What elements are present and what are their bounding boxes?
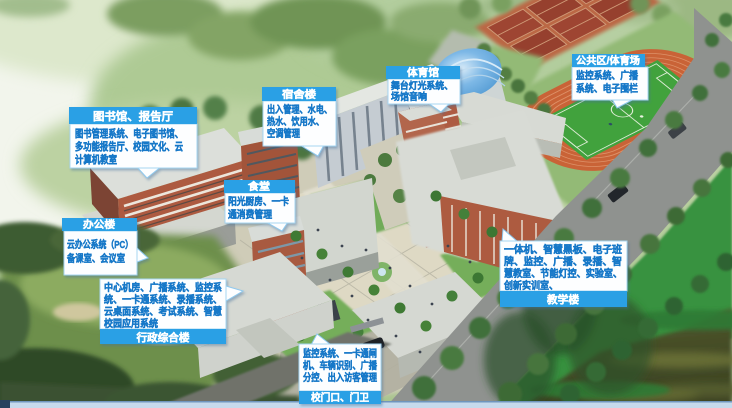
svg-text:中心机房、广播系统、监控系: 中心机房、广播系统、监控系: [104, 281, 222, 294]
svg-text:分控、出入访客管理: 分控、出入访客管理: [303, 371, 377, 384]
svg-text:食堂: 食堂: [247, 180, 270, 193]
svg-text:云桌面系统、考试系统、智慧: 云桌面系统、考试系统、智慧: [104, 305, 222, 318]
svg-text:宿舍楼: 宿舍楼: [282, 88, 316, 101]
svg-text:舞台灯光系统、: 舞台灯光系统、: [391, 80, 453, 92]
svg-text:通消费管理: 通消费管理: [228, 208, 272, 221]
svg-text:备课室、会议室: 备课室、会议室: [66, 252, 125, 265]
svg-text:教学楼: 教学楼: [546, 293, 580, 306]
svg-text:多功能报告厅、校园文化、云: 多功能报告厅、校园文化、云: [75, 140, 183, 153]
svg-text:行政综合楼: 行政综合楼: [135, 331, 190, 344]
svg-text:一体机、智慧黑板、电子班: 一体机、智慧黑板、电子班: [504, 243, 622, 256]
svg-text:慧教室、节能灯控、实验室、: 慧教室、节能灯控、实验室、: [504, 267, 622, 280]
svg-text:创新实训室、: 创新实训室、: [503, 279, 558, 292]
svg-text:监控系统、一卡通闸: 监控系统、一卡通闸: [303, 347, 377, 360]
svg-text:系统、电子围栏: 系统、电子围栏: [576, 82, 638, 95]
svg-text:监控系统、广播: 监控系统、广播: [576, 69, 639, 82]
svg-text:办公楼: 办公楼: [83, 218, 115, 231]
svg-text:公共区/体育场: 公共区/体育场: [576, 54, 640, 67]
svg-text:牌、监控、广播、录播、智: 牌、监控、广播、录播、智: [504, 255, 622, 268]
svg-text:出入管理、水电、: 出入管理、水电、: [267, 103, 332, 116]
svg-text:图书管理系统、电子图书馆、: 图书管理系统、电子图书馆、: [75, 127, 183, 140]
svg-text:场馆音响: 场馆音响: [391, 91, 427, 103]
svg-text:计算机教室: 计算机教室: [75, 153, 117, 166]
svg-text:热水、饮用水、: 热水、饮用水、: [267, 115, 324, 128]
svg-text:机、车辆识别、广播: 机、车辆识别、广播: [303, 359, 378, 372]
svg-text:校门口、门卫: 校门口、门卫: [311, 391, 369, 404]
svg-text:空调管理: 空调管理: [267, 127, 300, 140]
svg-text:阳光厨房、一卡: 阳光厨房、一卡: [228, 195, 289, 208]
svg-text:统、一卡通系统、录播系统、: 统、一卡通系统、录播系统、: [104, 293, 222, 306]
svg-text:云办公系统（PC）: 云办公系统（PC）: [67, 238, 133, 251]
svg-text:图书馆、报告厅: 图书馆、报告厅: [93, 109, 173, 123]
svg-text:校园应用系统: 校园应用系统: [104, 317, 158, 330]
svg-text:体育馆: 体育馆: [407, 66, 439, 79]
